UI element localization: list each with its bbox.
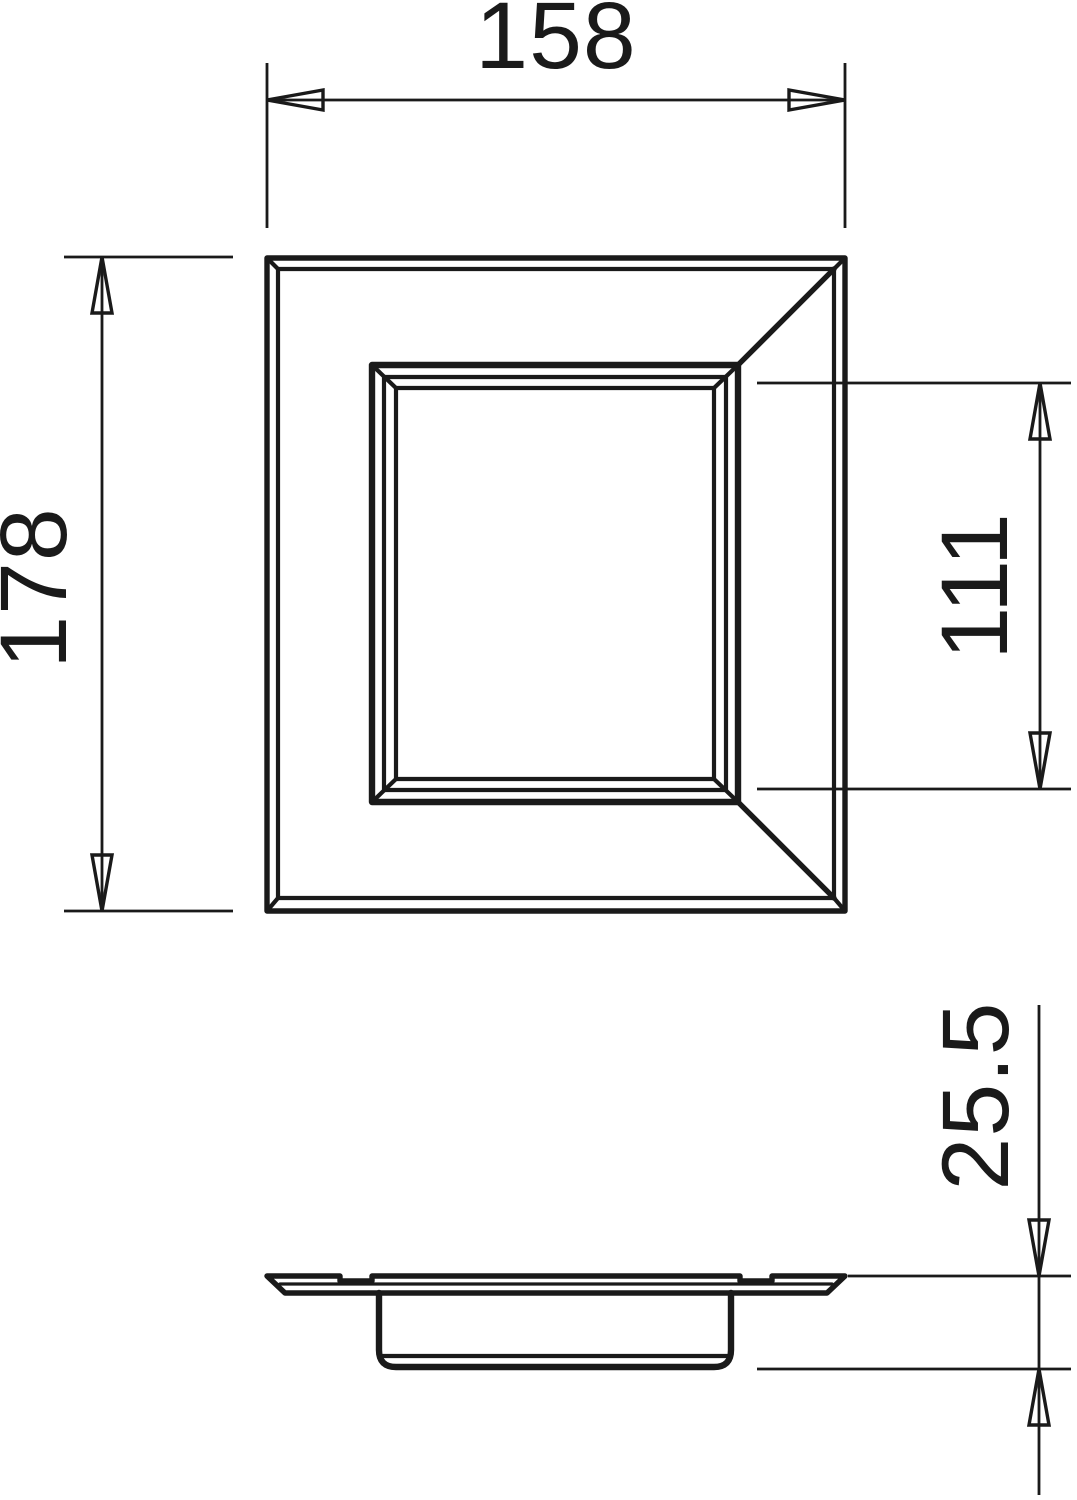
dim-178-lines: [64, 257, 233, 911]
drawing-canvas: 158 178 111 25.5: [0, 0, 1077, 1500]
outer-plate-outline: [267, 258, 845, 911]
dim-label-overall-height: 178: [0, 507, 87, 669]
side-view: [267, 1276, 845, 1367]
outer-corner-mitres: [267, 258, 845, 911]
top-view: [267, 258, 845, 911]
dimension-overall-depth: 25.5: [757, 1002, 1071, 1495]
raised-frame-outline: [372, 365, 738, 802]
raised-frame-step-edge: [384, 377, 726, 790]
raised-frame-corner-mitres: [372, 365, 738, 802]
dim-label-overall-depth: 25.5: [923, 1002, 1029, 1191]
technical-drawing: 158 178 111 25.5: [0, 0, 1077, 1500]
dimension-overall-width: 158: [267, 0, 845, 228]
dimension-opening-height: 111: [757, 383, 1071, 789]
dimension-overall-height: 178: [0, 257, 233, 911]
raised-frame-opening-edge: [396, 388, 714, 779]
bevel-diagonals: [738, 269, 834, 898]
dim-label-opening-height: 111: [922, 512, 1028, 659]
dim-label-overall-width: 158: [475, 0, 637, 89]
